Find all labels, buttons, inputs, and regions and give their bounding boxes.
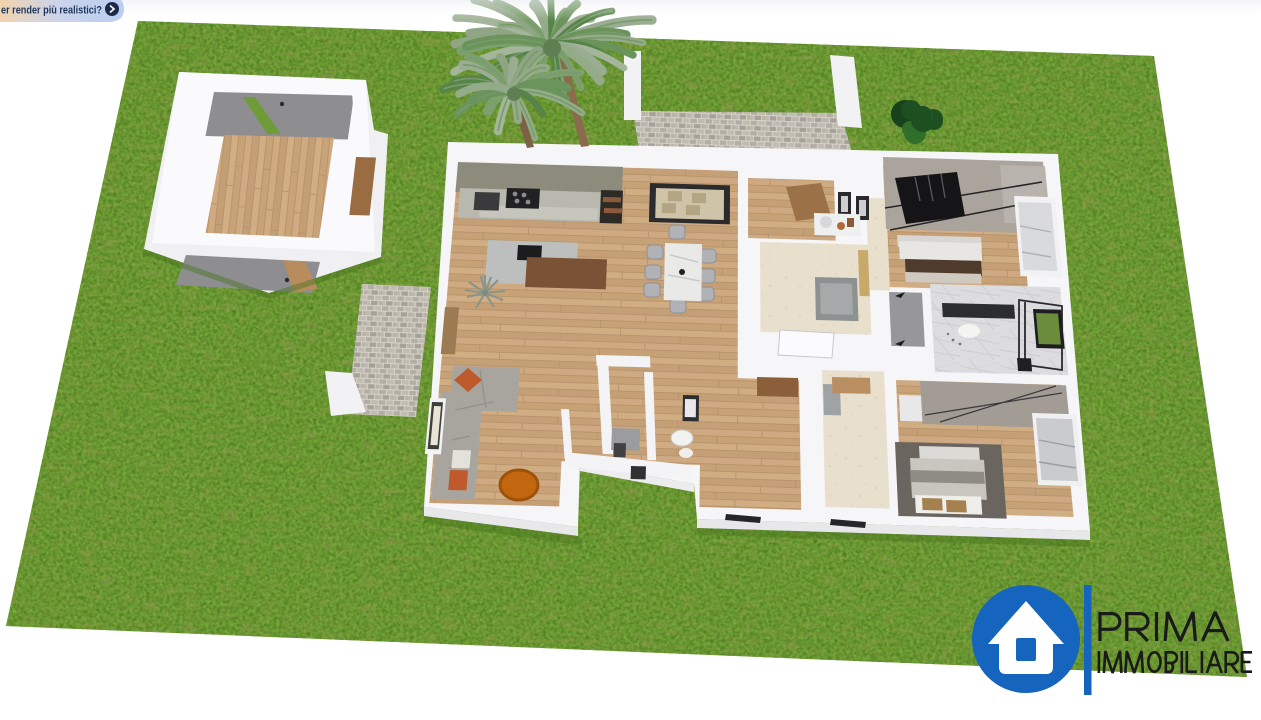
- svg-text:er render più realistici?: er render più realistici?: [1, 5, 102, 17]
